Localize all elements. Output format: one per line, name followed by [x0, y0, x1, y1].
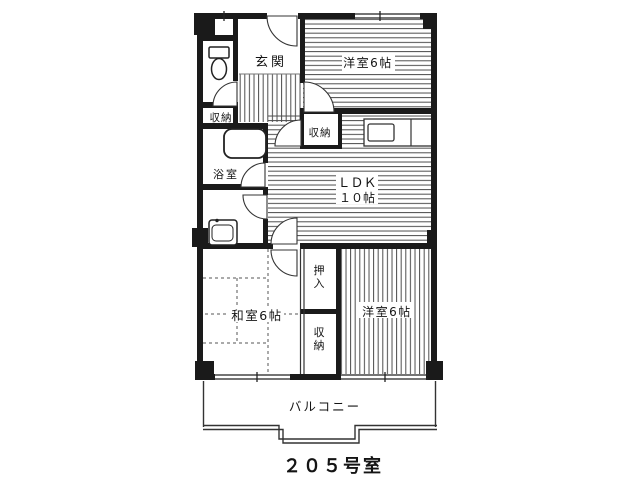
toilet-tank-icon	[209, 47, 229, 58]
faucet-dot-icon	[215, 219, 218, 222]
wall	[233, 13, 238, 81]
balcony-label: バルコニー	[289, 399, 361, 414]
storage-center-label: 収納	[309, 126, 332, 139]
wall	[300, 13, 305, 83]
ldk-label: ＬＤＫ	[337, 176, 376, 191]
wall	[263, 219, 268, 247]
washitsu-label: 和室6帖	[231, 308, 282, 323]
toilet-icon	[212, 59, 227, 80]
oshiire-label: 押入	[314, 263, 325, 290]
kitchen-sink-icon	[368, 124, 394, 141]
storage-left-label: 収納	[210, 111, 233, 124]
wall	[300, 309, 340, 314]
pillar	[426, 361, 443, 380]
pillar	[195, 361, 214, 380]
washbasin-bowl-icon	[212, 225, 233, 241]
western-room-top-label: 洋室6帖	[343, 55, 393, 70]
western-room-bottom-label: 洋室6帖	[362, 304, 412, 319]
door-arc-entrance	[267, 16, 297, 46]
wall	[263, 187, 268, 195]
wall	[203, 35, 238, 41]
wall	[298, 13, 355, 19]
bathtub-icon	[224, 129, 266, 158]
bath-label: 浴室	[213, 167, 239, 181]
genkan-label: 玄関	[255, 55, 287, 70]
room-number-label: ２０５号室	[283, 455, 383, 477]
wall	[300, 243, 434, 249]
door-arc-washroom	[243, 195, 267, 219]
door-arc-bath	[241, 163, 265, 187]
pillar	[423, 13, 437, 29]
floorplan-drawing: 玄関 洋室6帖 収納 収納 浴室 ＬＤＫ １０帖 和室6帖 押入 収納 洋室6帖…	[0, 0, 640, 480]
storage-bottom-label: 収納	[314, 326, 325, 352]
entrance-hall-floor	[239, 74, 302, 122]
floorplan-page: 玄関 洋室6帖 収納 収納 浴室 ＬＤＫ １０帖 和室6帖 押入 収納 洋室6帖…	[0, 0, 640, 480]
wall	[336, 249, 341, 374]
wall	[290, 374, 341, 380]
wall	[197, 13, 203, 380]
wall	[431, 13, 437, 380]
door-arc-toilet	[213, 82, 237, 106]
pillar	[194, 13, 215, 35]
ldk-size-label: １０帖	[339, 190, 375, 205]
door-arc-washitsu	[271, 250, 297, 276]
